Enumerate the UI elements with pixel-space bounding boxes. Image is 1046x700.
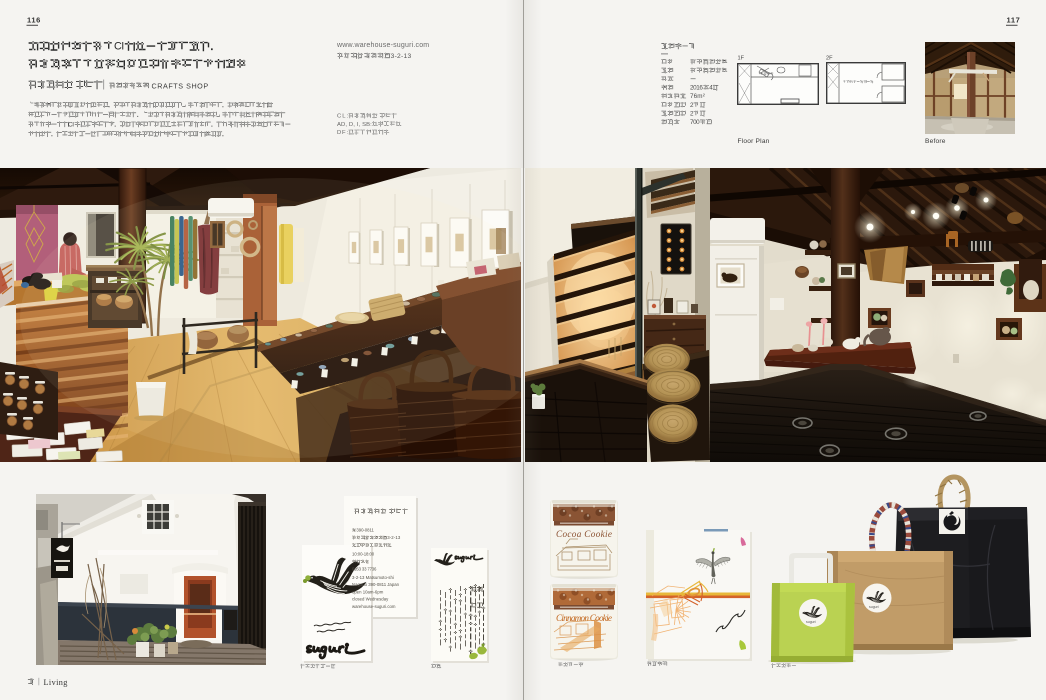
- svg-text:116: 116: [27, 16, 41, 25]
- svg-text:DF:: DF:: [337, 130, 348, 136]
- svg-text:CRAFTS SHOP: CRAFTS SHOP: [152, 81, 209, 90]
- svg-text:suguri: suguri: [869, 605, 879, 609]
- svg-text:AD, D, I, SB:: AD, D, I, SB:: [337, 122, 372, 128]
- svg-text:390-0811: 390-0811: [356, 528, 374, 533]
- svg-text:2: 2: [690, 102, 694, 109]
- svg-text:warehouse-suguri.com: warehouse-suguri.com: [352, 604, 396, 609]
- svg-text:0263 33 7736: 0263 33 7736: [352, 566, 377, 571]
- svg-text:3-2-13 Matsumoto-shi: 3-2-13 Matsumoto-shi: [352, 575, 394, 580]
- svg-text:2: 2: [690, 110, 694, 117]
- svg-text:CL:: CL:: [337, 114, 348, 120]
- svg-text:10:00-18:00: 10:00-18:00: [352, 552, 375, 557]
- svg-text:suguri: suguri: [806, 620, 816, 624]
- svg-text:Floor Plan: Floor Plan: [738, 138, 770, 145]
- svg-text:76m²: 76m²: [690, 93, 705, 100]
- svg-text:700: 700: [690, 119, 700, 126]
- svg-text:4: 4: [709, 85, 713, 92]
- svg-text:www.warehouse-suguri.com: www.warehouse-suguri.com: [336, 42, 429, 49]
- svg-text:CI: CI: [114, 41, 124, 53]
- svg-text:open 10am-6pm: open 10am-6pm: [352, 589, 384, 594]
- svg-text:2F: 2F: [826, 56, 833, 62]
- svg-text:Nagano 390-0811 Japan: Nagano 390-0811 Japan: [352, 582, 400, 587]
- svg-text:3-2-13: 3-2-13: [387, 535, 401, 540]
- svg-text:CI: CI: [68, 121, 74, 128]
- svg-text:2016: 2016: [690, 85, 703, 92]
- svg-text:Before: Before: [925, 138, 946, 145]
- svg-text:Living: Living: [44, 678, 68, 687]
- svg-text:3-2-13: 3-2-13: [391, 53, 412, 60]
- svg-text:117: 117: [1007, 16, 1021, 25]
- svg-text:1F: 1F: [738, 56, 745, 62]
- svg-text:closed Wednesday: closed Wednesday: [352, 597, 389, 602]
